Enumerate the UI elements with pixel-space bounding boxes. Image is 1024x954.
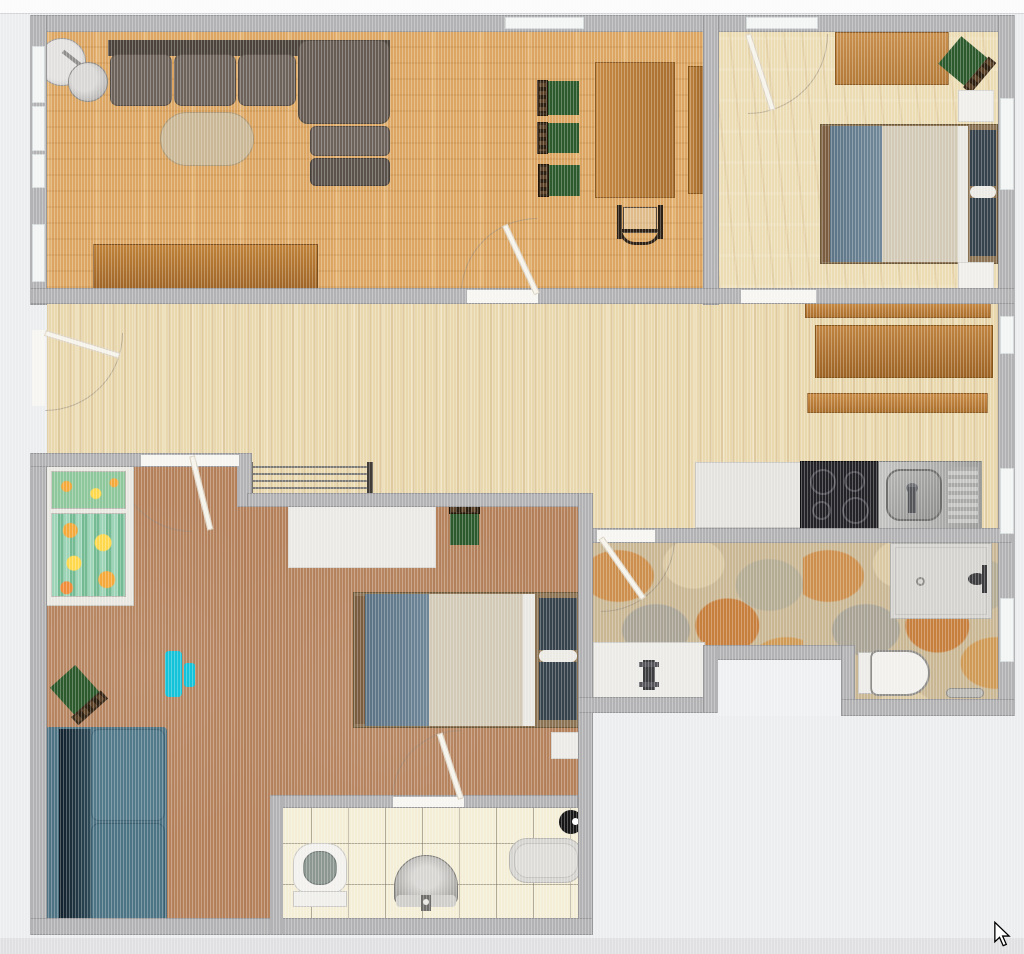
bathroom-sink[interactable] bbox=[394, 855, 458, 913]
mouse-cursor bbox=[993, 921, 1011, 947]
wall bbox=[247, 493, 593, 507]
floor-plan-canvas[interactable] bbox=[0, 0, 1024, 954]
window bbox=[1000, 598, 1014, 662]
toilet-2[interactable] bbox=[858, 650, 930, 696]
window bbox=[505, 17, 584, 29]
bathtub[interactable] bbox=[509, 838, 583, 883]
wall-shelf-small[interactable] bbox=[946, 688, 984, 698]
window bbox=[1000, 468, 1014, 534]
floor-lamp[interactable] bbox=[38, 36, 108, 102]
wall bbox=[30, 453, 47, 935]
cyan-toy[interactable] bbox=[163, 651, 195, 697]
white-rug[interactable] bbox=[288, 505, 436, 568]
head-chair[interactable] bbox=[617, 205, 663, 251]
kitchen-counter[interactable] bbox=[695, 462, 801, 528]
wall bbox=[578, 697, 718, 713]
kids-bed[interactable] bbox=[43, 462, 134, 606]
master-bed[interactable] bbox=[353, 592, 585, 728]
dining-table[interactable] bbox=[595, 62, 675, 198]
teal-sofa[interactable] bbox=[45, 727, 167, 925]
wall bbox=[841, 699, 1015, 716]
dining-chair-1[interactable] bbox=[537, 80, 581, 116]
window bbox=[1000, 98, 1014, 190]
door-opening bbox=[467, 290, 538, 303]
wall bbox=[703, 15, 719, 305]
green-chair-mid[interactable] bbox=[447, 504, 482, 547]
screen-decor bbox=[0, 0, 1024, 13]
door-opening bbox=[741, 290, 816, 303]
cooktop[interactable] bbox=[800, 461, 879, 530]
wall bbox=[578, 493, 593, 935]
shower[interactable] bbox=[890, 543, 992, 619]
railing[interactable] bbox=[247, 462, 373, 495]
kitchen-sink[interactable] bbox=[878, 461, 982, 530]
window bbox=[746, 17, 818, 29]
dining-chair-2[interactable] bbox=[537, 122, 581, 154]
wall bbox=[703, 645, 718, 713]
door-opening bbox=[393, 797, 464, 807]
window bbox=[32, 46, 45, 103]
coffee-table[interactable] bbox=[160, 112, 254, 166]
nightstand-top[interactable] bbox=[958, 90, 994, 122]
window bbox=[32, 224, 45, 282]
window bbox=[32, 154, 45, 188]
toilet-1[interactable] bbox=[291, 843, 349, 907]
exterior-notch bbox=[716, 658, 844, 716]
wall bbox=[30, 918, 593, 935]
kitchen-shelf-3[interactable] bbox=[807, 393, 988, 413]
double-bed[interactable] bbox=[820, 124, 998, 264]
window bbox=[1000, 316, 1014, 354]
sideboard[interactable] bbox=[93, 244, 318, 291]
door-opening bbox=[32, 330, 45, 406]
dining-chair-3[interactable] bbox=[538, 164, 582, 197]
wall bbox=[270, 795, 283, 935]
screen-decor bbox=[0, 13, 1024, 14]
wall-shelf-dining[interactable] bbox=[688, 66, 704, 194]
wall bbox=[703, 645, 855, 660]
vanity-counter[interactable] bbox=[593, 642, 705, 698]
kitchen-shelf-2[interactable] bbox=[815, 325, 993, 378]
window bbox=[32, 106, 45, 151]
screen-decor bbox=[0, 938, 1024, 954]
bedroom-dresser[interactable] bbox=[835, 32, 949, 85]
